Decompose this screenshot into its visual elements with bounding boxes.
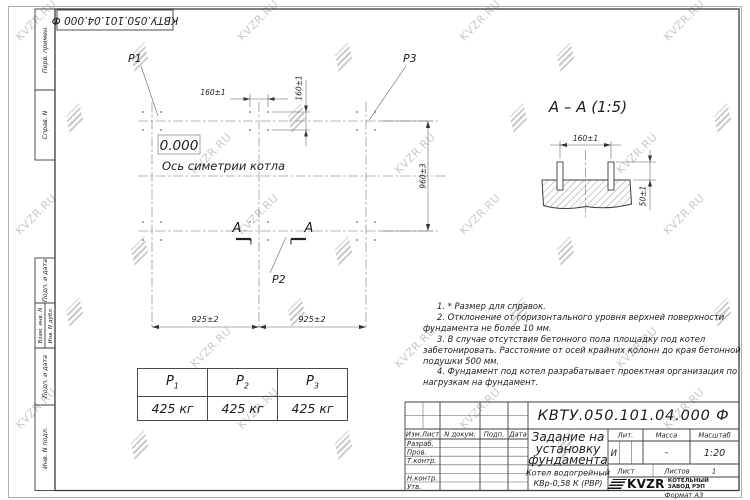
- dim-160-horizontal: 160±1: [200, 88, 288, 107]
- zero-level-mark: 0.000: [160, 138, 199, 154]
- margin-label-inv-dubl: Инв. N дубл.: [48, 307, 54, 343]
- header-n-dokum: N докум.: [444, 431, 476, 439]
- load-table-value-row: 425 кг 425 кг 425 кг: [138, 397, 348, 421]
- section-letter-left: A: [232, 221, 242, 236]
- section-cut-marks: A A: [232, 221, 314, 245]
- top-designation-text: КВТУ.050.101.04.000 Ф: [52, 14, 179, 26]
- dim-160-vertical: 160±1: [272, 75, 310, 146]
- top-designation-stamp: КВТУ.050.101.04.000 Ф: [52, 10, 179, 30]
- kvzr-logo-text: KVZR: [627, 479, 665, 490]
- load-table-header-p2: P2: [208, 369, 278, 397]
- note-item-4: 4. Фундамент под котел разрабатывает про…: [423, 366, 745, 388]
- load-point-p1-label: P1: [128, 52, 142, 65]
- svg-text:160±1: 160±1: [200, 88, 225, 97]
- kvzr-logo-icon: [607, 479, 627, 489]
- section-view: A – A (1:5) 160±1 50±1: [542, 98, 656, 218]
- svg-text:160±1: 160±1: [295, 75, 304, 100]
- header-izm-list: Изм.Лист: [406, 431, 440, 439]
- section-letter-right: A: [304, 221, 314, 236]
- svg-text:50±1: 50±1: [639, 186, 648, 207]
- mass-value: –: [665, 448, 669, 457]
- margin-label-podp-data-2: Подп. и дата: [42, 355, 49, 398]
- technical-notes: 1. * Размер для справок. 2. Отклонение о…: [423, 301, 745, 388]
- product-line-1: Котел водогрейный: [526, 469, 610, 478]
- section-view-title: A – A (1:5): [548, 98, 627, 116]
- sheets-value: 1: [712, 468, 716, 476]
- anchor-bolt-right: [608, 162, 614, 190]
- note-item-3: 3. В случае отсутствия бетонного пола пл…: [423, 334, 745, 367]
- header-data: Дата: [508, 431, 527, 439]
- load-point-p2-label: P2: [272, 273, 286, 286]
- margin-strip: Перв. примен. Справ. N Подп. и дата Взам…: [35, 9, 55, 491]
- row-nkontr: Н.контр.: [407, 474, 437, 482]
- title-block-designation: КВТУ.050.101.04.000 Ф: [538, 408, 730, 424]
- margin-label-vzam-inv: Взам. инв. N: [38, 308, 44, 344]
- foundation-plan: P1 P3 P2 0.000 Ось симетрии котла A A: [128, 52, 448, 329]
- load-table: P1 P2 P3 425 кг 425 кг 425 кг: [137, 368, 348, 421]
- row-utv: Утв.: [407, 483, 421, 491]
- note-item-1: 1. * Размер для справок.: [423, 301, 745, 312]
- load-table-value-p1: 425 кг: [138, 397, 208, 421]
- svg-text:925±2: 925±2: [191, 315, 218, 324]
- margin-label-podp-data-1: Подп. и дата: [42, 259, 49, 302]
- load-table-value-p2: 425 кг: [208, 397, 278, 421]
- row-tkontr: Т.контр.: [407, 457, 436, 465]
- lit-label: Лит.: [617, 432, 634, 440]
- company-name: КОТЕЛЬНЫЙ ЗАВОД РЭП: [668, 478, 709, 490]
- load-table-header-p3: P3: [278, 369, 348, 397]
- scale-value: 1:20: [704, 448, 725, 459]
- sheets-label: Листов: [663, 468, 689, 476]
- sheet-label: Лист: [616, 468, 635, 476]
- header-podp: Подп.: [484, 431, 505, 439]
- svg-text:925±2: 925±2: [298, 315, 325, 324]
- format-note: Формат А3: [665, 492, 704, 500]
- mass-label: Масса: [656, 432, 678, 440]
- load-table-header-p1: P1: [138, 369, 208, 397]
- load-point-p3-label: P3: [403, 52, 417, 65]
- anchor-bolt-left: [557, 162, 563, 190]
- drawing-sheet: KVZR.RUKVZR.RUKVZR.RUKVZR.RUKVZR.RUKVZR.…: [0, 0, 750, 500]
- row-razrab: Разраб.: [407, 440, 434, 448]
- foundation-section-body: [542, 180, 632, 209]
- boiler-axis-label: Ось симетрии котла: [162, 159, 285, 173]
- load-table-header-row: P1 P2 P3: [138, 369, 348, 397]
- margin-label-perv-primen: Перв. примен.: [42, 26, 49, 73]
- margin-label-sprav-n: Справ. N: [42, 110, 49, 139]
- margin-label-inv-podl: Инв. N подл.: [42, 427, 49, 469]
- drawing-canvas: Перв. примен. Справ. N Подп. и дата Взам…: [0, 0, 750, 500]
- load-table-value-p3: 425 кг: [278, 397, 348, 421]
- svg-text:960±3: 960±3: [419, 163, 428, 189]
- scale-label: Масштаб: [698, 432, 730, 440]
- lit-value: И: [611, 449, 618, 459]
- note-item-2: 2. Отклонение от горизонтального уровня …: [423, 312, 745, 334]
- manufacturer-logo-row: KVZR КОТЕЛЬНЫЙ ЗАВОД РЭП: [610, 479, 738, 490]
- row-prov: Пров.: [407, 449, 427, 457]
- svg-text:160±1: 160±1: [573, 134, 598, 143]
- doc-title-line-3: фундамента: [528, 453, 607, 467]
- product-line-2: КВр-0,58 К (РВР): [533, 479, 602, 488]
